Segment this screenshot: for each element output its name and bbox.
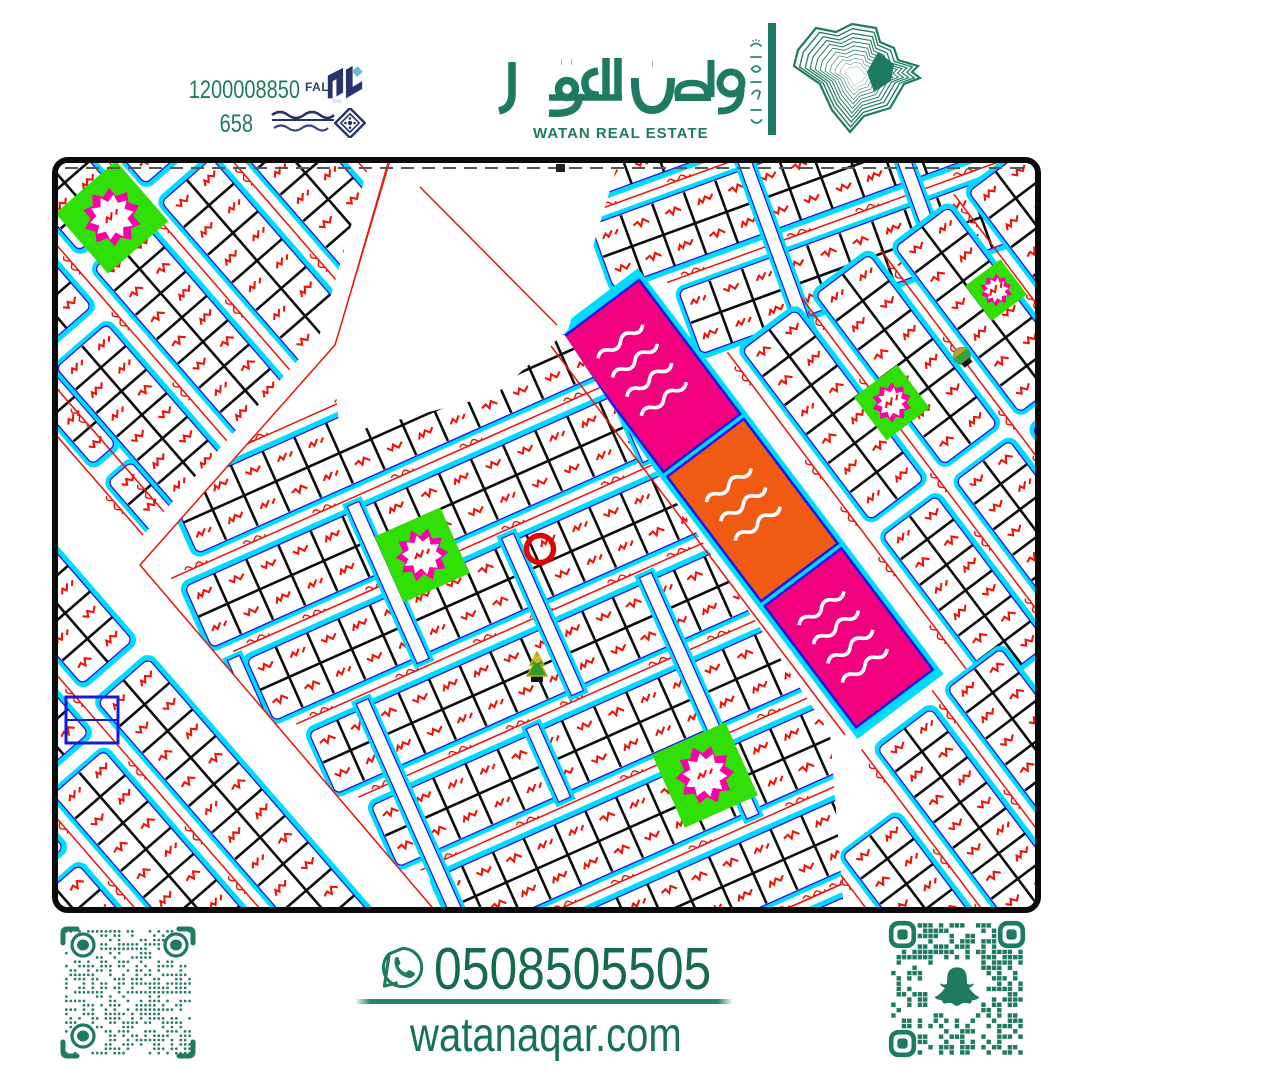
svg-text:WATAN REAL ESTATE: WATAN REAL ESTATE bbox=[533, 125, 709, 142]
